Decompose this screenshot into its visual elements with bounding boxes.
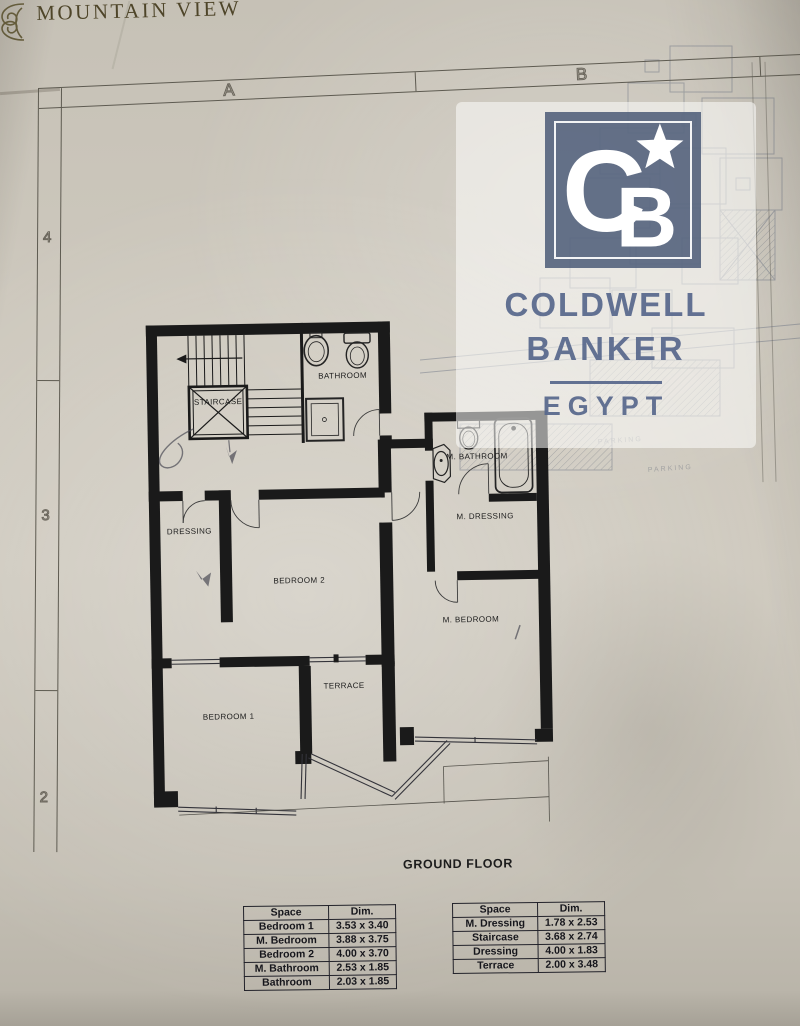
table-header-row: Space Dim. [453, 902, 605, 918]
header-space: Space [244, 905, 329, 920]
watermark-coldwell: COLDWELL [456, 286, 756, 324]
space-cell: M. Bedroom [244, 933, 329, 948]
table-header-row: Space Dim. [244, 905, 396, 921]
dim-cell: 3.88 x 3.75 [329, 933, 396, 948]
room-label-m-bedroom: M. BEDROOM [443, 615, 500, 625]
grid-row-2: 2 [40, 788, 48, 807]
coldwell-banker-watermark: C B COLDWELL BANKER EGYPT [456, 102, 756, 448]
dimension-table-2: Space Dim. M. Dressing 1.78 x 2.53 Stair… [452, 901, 606, 974]
dimension-table-1: Space Dim. Bedroom 1 3.53 x 3.40 M. Bedr… [243, 904, 397, 991]
cb-monogram-icon: C B [545, 112, 701, 268]
header-dim: Dim. [328, 905, 395, 920]
grid-column-b: B [576, 65, 588, 84]
windows [172, 651, 539, 817]
parking-label: PARKING [648, 464, 693, 474]
grid-column-a: A [223, 80, 235, 99]
space-cell: Staircase [453, 930, 538, 945]
dim-cell: 3.68 x 2.74 [538, 930, 605, 945]
table-row: Bedroom 1 3.53 x 3.40 [244, 919, 396, 935]
table-row: M. Bathroom 2.53 x 1.85 [244, 961, 396, 977]
room-label-staircase: STAIRCASE [194, 397, 243, 407]
grid-divider [35, 690, 57, 691]
boundary-lines [178, 757, 549, 828]
table-row: Terrace 2.00 x 3.48 [453, 958, 605, 974]
floor-title: GROUND FLOOR [403, 856, 513, 871]
room-label-dressing: DRESSING [167, 527, 212, 537]
dim-cell: 2.53 x 1.85 [329, 961, 396, 976]
mountain-view-emblem-icon [0, 0, 36, 44]
coldwell-banker-logo-icon: C B [545, 112, 701, 268]
watermark-divider [550, 381, 662, 384]
space-cell: Bedroom 2 [244, 947, 329, 962]
room-label-m-bathroom: M. BATHROOM [446, 451, 507, 461]
watermark-egypt: EGYPT [456, 391, 756, 422]
dim-cell: 1.78 x 2.53 [538, 916, 605, 931]
grid-row-4: 4 [43, 228, 51, 247]
room-label-bedroom-2: BEDROOM 2 [273, 576, 325, 586]
watermark-banker: BANKER [456, 330, 756, 368]
dim-cell: 2.00 x 3.48 [538, 958, 605, 973]
grid-row-3: 3 [41, 506, 49, 525]
table-row: M. Bedroom 3.88 x 3.75 [244, 933, 396, 949]
header-space: Space [453, 902, 538, 917]
room-label-m-dressing: M. DRESSING [456, 511, 513, 521]
room-label-bedroom-1: BEDROOM 1 [203, 712, 255, 722]
space-cell: Bathroom [244, 975, 329, 990]
table-row: M. Dressing 1.78 x 2.53 [453, 916, 605, 932]
dim-cell: 2.03 x 1.85 [329, 975, 396, 990]
space-cell: M. Bathroom [244, 961, 329, 976]
room-label-bathroom: BATHROOM [318, 371, 367, 381]
grid-divider [415, 72, 417, 91]
table-row: Dressing 4.00 x 1.83 [453, 944, 605, 960]
photo-edge-shade [0, 990, 800, 1026]
staircase-drawing [176, 334, 302, 439]
bathroom-fixtures [304, 332, 372, 441]
header-dim: Dim. [537, 902, 604, 917]
sheet-left-strip: 4 3 2 [33, 88, 62, 852]
space-cell: M. Dressing [453, 916, 538, 931]
grid-divider [37, 380, 59, 381]
dim-cell: 3.53 x 3.40 [329, 919, 396, 934]
space-cell: Dressing [453, 944, 538, 959]
space-cell: Terrace [453, 958, 538, 973]
dim-cell: 4.00 x 3.70 [329, 947, 396, 962]
room-label-terrace: TERRACE [323, 681, 364, 691]
dim-cell: 4.00 x 1.83 [538, 944, 605, 959]
brand-title: MOUNTAIN VIEW [36, 0, 241, 26]
table-row: Bedroom 2 4.00 x 3.70 [244, 947, 396, 963]
table-row: Staircase 3.68 x 2.74 [453, 930, 605, 946]
space-cell: Bedroom 1 [244, 919, 329, 934]
monogram-b: B [616, 171, 677, 266]
table-row: Bathroom 2.03 x 1.85 [244, 975, 396, 991]
